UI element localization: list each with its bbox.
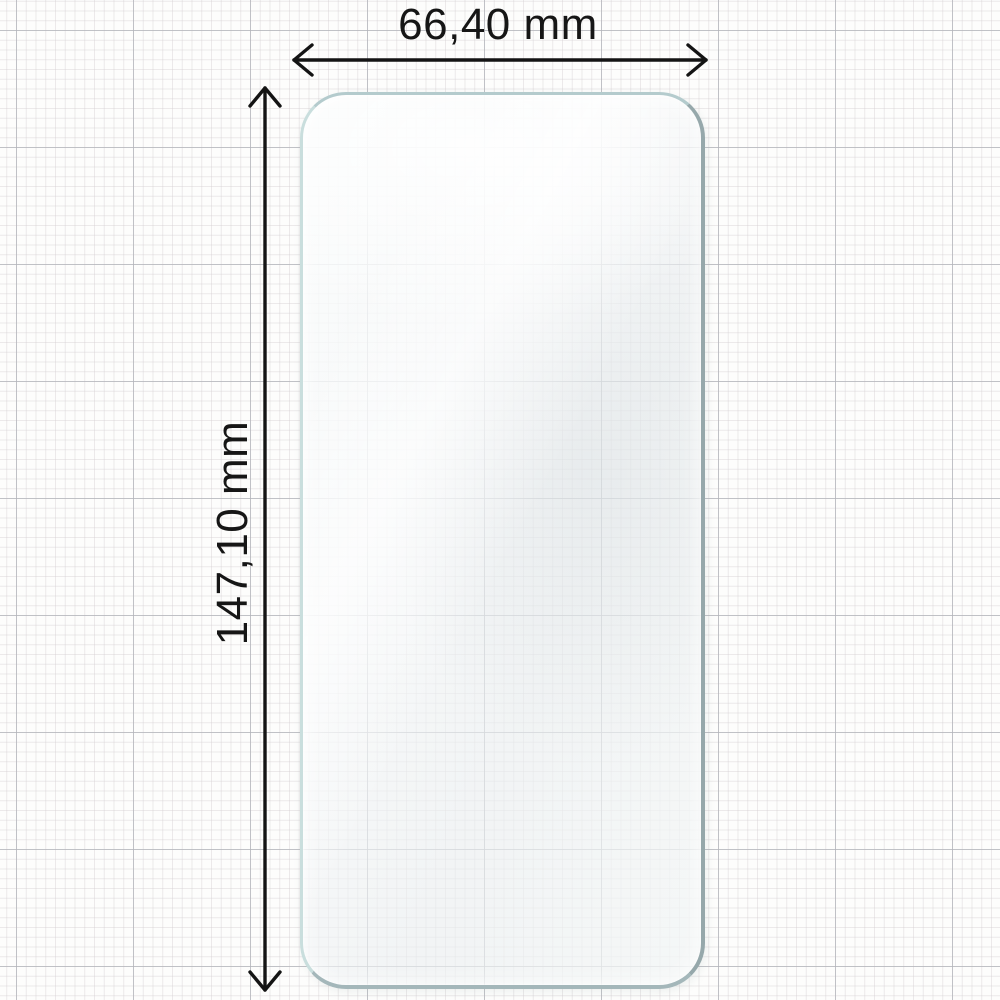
screen-protector-film [300, 92, 705, 989]
graph-paper-background: 66,40 mm 147,10 mm [0, 0, 1000, 1000]
height-dimension-label: 147,10 mm [208, 363, 258, 703]
width-dimension-label: 66,40 mm [298, 0, 698, 50]
